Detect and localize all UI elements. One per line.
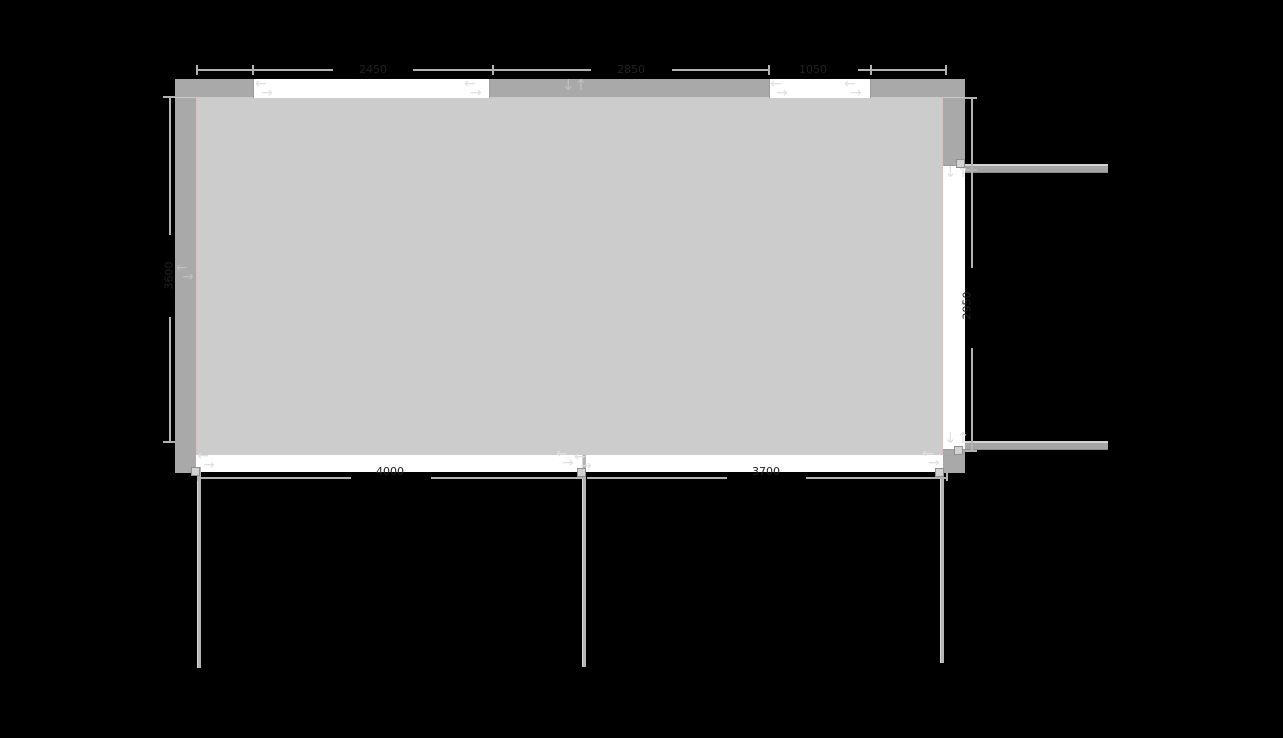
dimension-label: 2950 [962,283,973,329]
wall-top-segment-1[interactable] [175,79,253,98]
dimension-tick [196,65,198,75]
extension-line-middle[interactable] [582,455,586,667]
dimension-label: 4000 [367,466,413,477]
updown-arrows-icon[interactable]: ↓↑ [944,429,969,447]
extension-line-left[interactable] [197,467,201,668]
swap-arrows-icon[interactable]: ←→ [255,80,281,98]
dimension-line-bottom [197,477,351,479]
swap-arrows-icon[interactable]: ←→ [176,264,202,282]
dimension-tick [965,97,977,99]
dimension-tick [492,65,494,75]
wall-right-top-segment[interactable] [943,98,965,165]
dimension-tick [768,65,770,75]
dimension-label: 3600 [164,253,175,299]
opening-top-1[interactable] [253,79,490,98]
swap-arrows-icon[interactable]: ←→ [844,80,870,98]
dimension-line-bottom [431,477,583,479]
dimension-line-right [971,98,973,268]
wall-top-segment-2[interactable] [490,79,769,98]
dimension-tick [870,65,872,75]
endpoint-handle[interactable] [191,467,200,476]
dimension-tick [945,65,947,75]
swap-arrows-icon[interactable]: ←→ [922,450,948,468]
plan-canvas[interactable]: 2450 2850 1050 3600 2950 4000 3700 ←→ ←→… [0,0,1283,738]
dimension-label: 1050 [790,64,836,75]
dimension-line-left [169,317,171,443]
dimension-line-right [971,348,973,452]
dimension-tick [163,441,175,443]
endpoint-handle[interactable] [935,468,944,477]
dimension-label: 2450 [350,64,396,75]
dimension-line-top [196,69,333,71]
dimension-line-left [169,97,171,235]
dimension-line-bottom [806,477,948,479]
updown-arrows-icon[interactable]: ↓↑ [562,76,587,94]
dimension-line-top [672,69,769,71]
dimension-tick [946,473,948,481]
wall-bar-lower-right[interactable] [965,441,1108,450]
wall-top-segment-3[interactable] [871,79,965,98]
swap-arrows-icon[interactable]: ←→ [197,452,223,470]
dimension-tick [163,96,175,98]
dimension-line-top [413,69,591,71]
dimension-tick [252,65,254,75]
endpoint-handle[interactable] [956,159,965,168]
extension-line-right[interactable] [940,473,944,663]
endpoint-handle[interactable] [954,446,963,455]
dimension-label: 2850 [608,64,654,75]
dimension-tick [965,450,977,452]
swap-arrows-icon[interactable]: ←→ [770,80,796,98]
swap-arrows-icon[interactable]: ←→ [464,80,490,98]
wall-bar-upper-right[interactable] [965,164,1108,173]
dimension-label: 3700 [743,466,789,477]
dimension-line-bottom [587,477,727,479]
room-floor[interactable] [196,98,943,455]
endpoint-handle[interactable] [577,468,586,477]
